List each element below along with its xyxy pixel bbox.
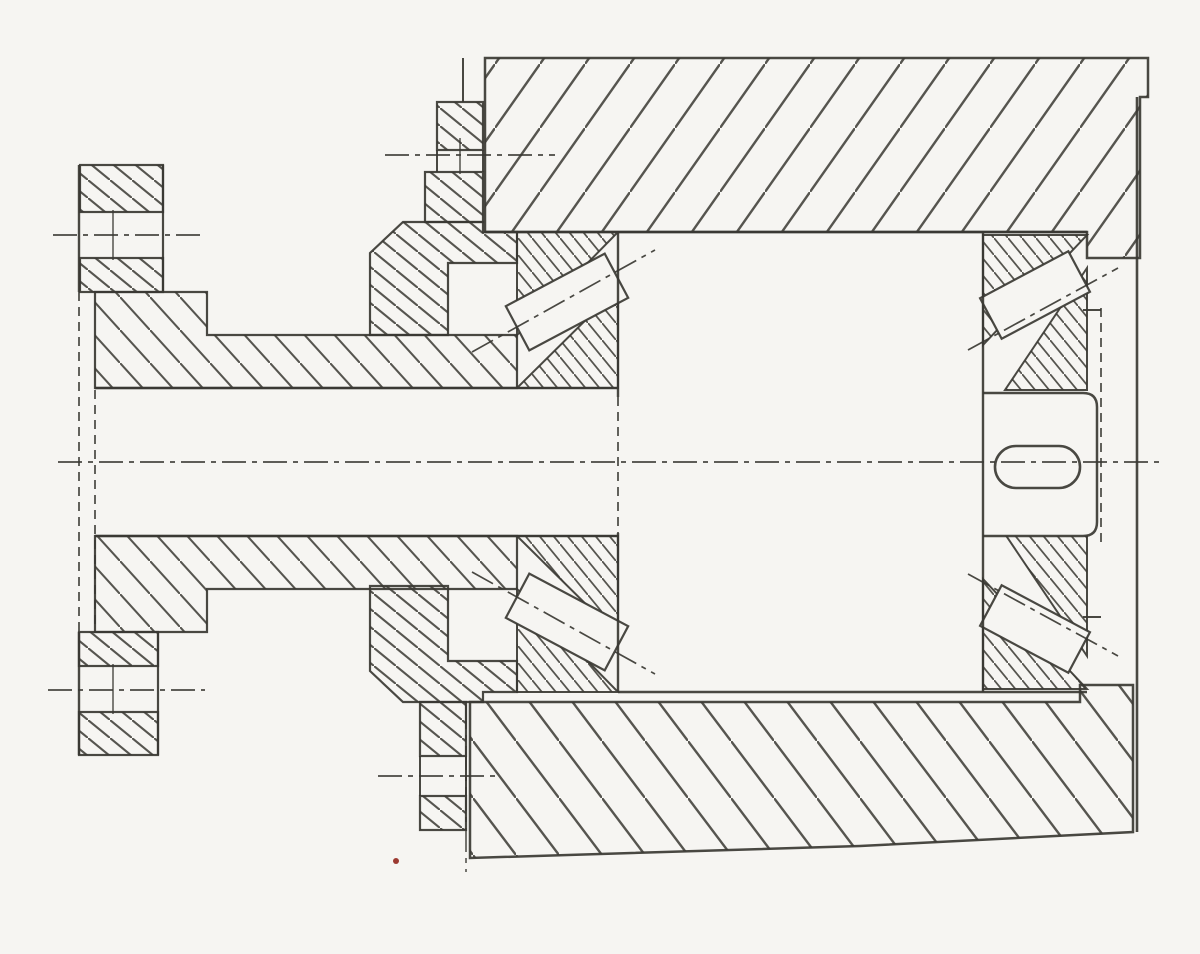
housing-lower-block: [470, 685, 1133, 858]
bottom-cap-body: [370, 586, 517, 702]
housing-upper-block: [485, 58, 1148, 258]
scan-artifact-dot: [393, 858, 399, 864]
top-cap-neck: [425, 172, 483, 222]
bottom-cap-lug: [420, 796, 466, 830]
hub-sleeve-bottom: [95, 536, 517, 632]
top-cap-body: [370, 222, 517, 335]
flange-top-inner: [80, 258, 163, 292]
flange-bottom-inner: [79, 632, 158, 666]
section-view-drawing: [0, 0, 1200, 954]
flange-top-outer: [80, 165, 163, 212]
engineering-drawing-scan: [0, 0, 1200, 954]
key-slot: [995, 446, 1080, 488]
bottom-cap-neck: [420, 702, 466, 756]
flange-bottom-outer: [79, 712, 158, 755]
hub-sleeve-top: [95, 292, 517, 388]
